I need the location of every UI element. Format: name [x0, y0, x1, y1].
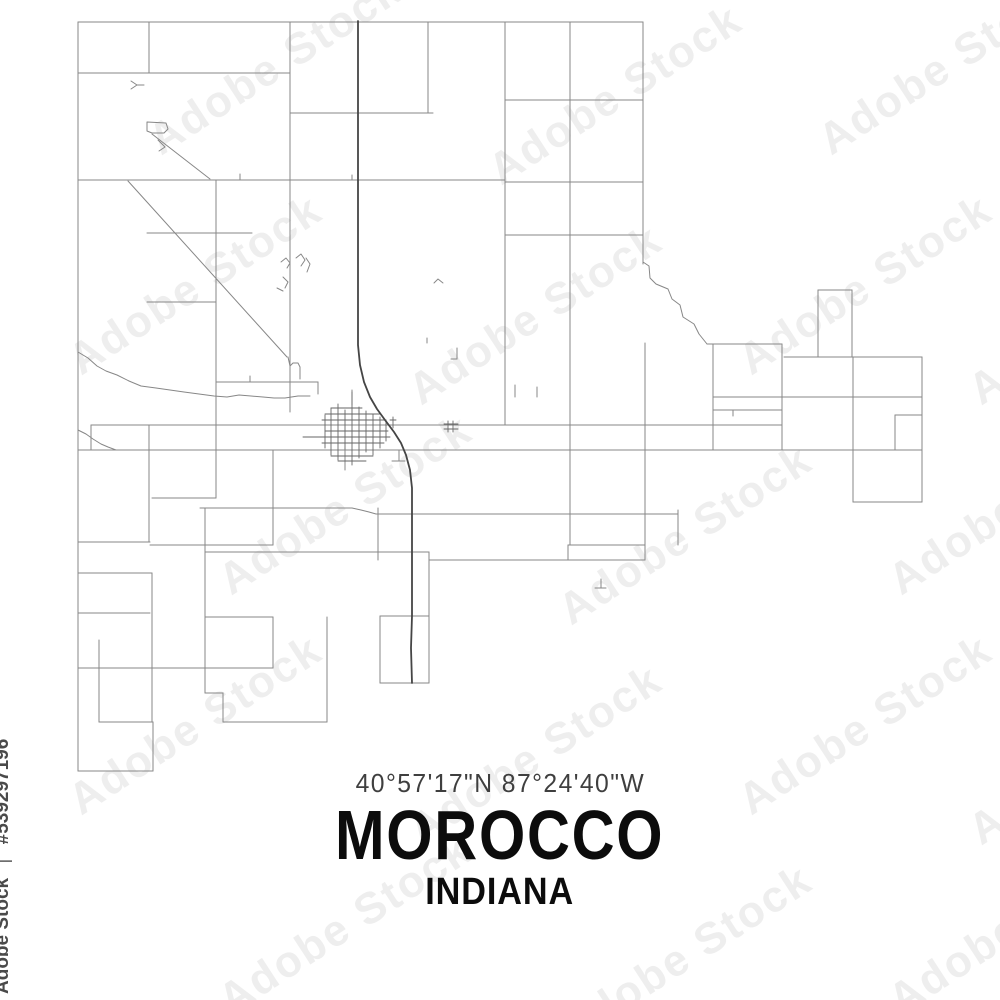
- state-subtitle: INDIANA: [0, 872, 1000, 914]
- map-line: [643, 235, 707, 344]
- stock-attribution: Adobe Stock | #539297196: [0, 739, 14, 994]
- map-line: [128, 181, 287, 357]
- map-line: [281, 258, 290, 268]
- map-line: [78, 352, 310, 398]
- map-line: [358, 21, 412, 683]
- map-line: [352, 508, 385, 514]
- map-line: [283, 277, 288, 288]
- coordinates-label: 40°57'17"N 87°24'40"W: [355, 768, 645, 799]
- stock-brand-label: Adobe Stock: [0, 878, 13, 994]
- map-line: [152, 134, 210, 179]
- map-line: [78, 430, 116, 450]
- map-line: [296, 254, 305, 266]
- map-poster: Adobe StockAdobe StockAdobe StockAdobe S…: [0, 0, 1000, 1000]
- map-line: [434, 279, 443, 283]
- caption-block: 40°57'17"N 87°24'40"W MOROCCO INDIANA: [0, 768, 1000, 914]
- map-line: [131, 81, 137, 89]
- city-title: MOROCCO: [0, 799, 1000, 872]
- map-line: [147, 122, 168, 133]
- stock-id-label: #539297196: [0, 739, 13, 845]
- map-line: [306, 258, 310, 272]
- stock-separator: |: [0, 859, 13, 864]
- map-line: [277, 288, 283, 291]
